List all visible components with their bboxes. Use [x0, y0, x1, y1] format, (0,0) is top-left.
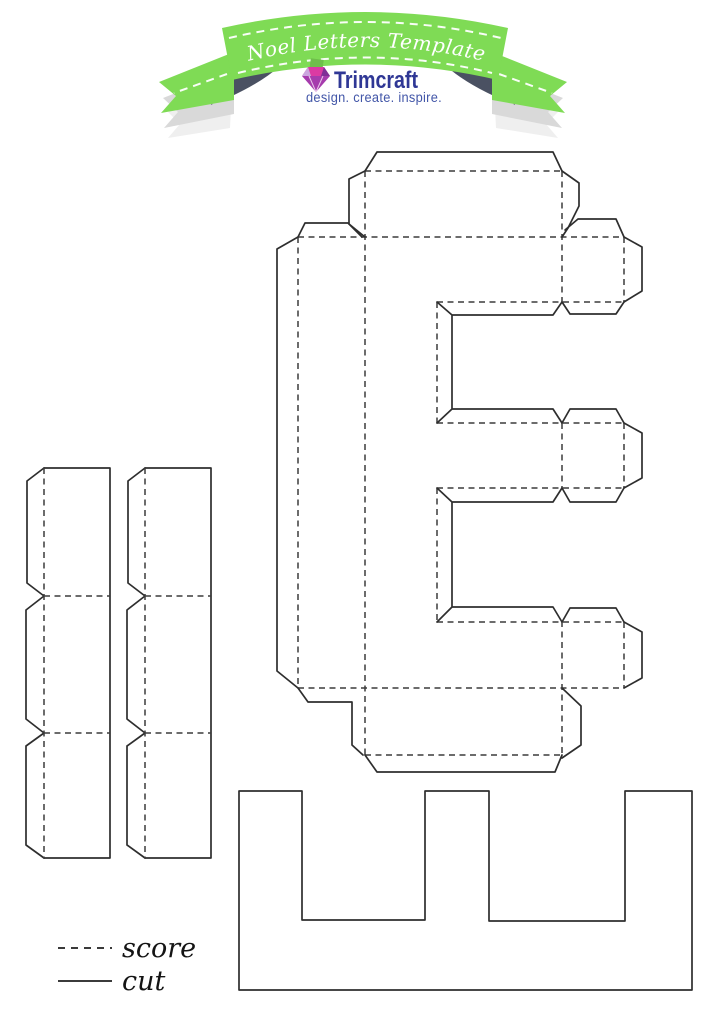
top-arm-bottom-tab [562, 302, 624, 314]
strip1-dividers [44, 596, 110, 733]
legend-cut-label: cut [122, 966, 166, 997]
middle-arm-right-flap [624, 423, 642, 488]
left-glue-flap [277, 237, 298, 688]
bottom-arm-top-tab [562, 608, 624, 622]
letter-e-template [277, 152, 642, 772]
top-arm-top-tab [565, 219, 624, 237]
left-wall-top-tab [298, 223, 362, 237]
notch1-tabs [437, 302, 562, 423]
score-lines [298, 171, 624, 755]
cut-lines [277, 152, 642, 772]
top-glue-tab [365, 152, 562, 171]
top-wall-right-flap [562, 171, 579, 237]
template-page: 3D Noel Letters Template - E Trimcraft d… [0, 0, 724, 1024]
diamond-icon [302, 67, 330, 92]
legend: score cut [58, 933, 196, 997]
strip1-panel [44, 468, 110, 858]
letter-back-cutout [239, 791, 692, 990]
strip1-flaps [26, 468, 44, 858]
strip2-flaps [127, 468, 145, 858]
notch2-tabs [437, 488, 562, 622]
legend-score-label: score [122, 933, 196, 964]
logo-tagline: design. create. inspire. [306, 90, 442, 105]
strip2-panel [145, 468, 211, 858]
bottom-glue-tab [365, 755, 562, 772]
bottom-wall-right-flap [562, 688, 581, 758]
side-strip-1 [26, 468, 110, 858]
top-arm-right-flap [624, 237, 642, 302]
strip2-dividers [145, 596, 211, 733]
bottom-arm-right-flap [624, 622, 642, 688]
side-strip-2 [127, 468, 211, 858]
middle-arm-bottom-tab [562, 488, 624, 502]
left-bottom-corner-tab [298, 688, 363, 755]
title-banner: 3D Noel Letters Template - E [0, 0, 567, 138]
middle-arm-top-tab [562, 409, 624, 423]
